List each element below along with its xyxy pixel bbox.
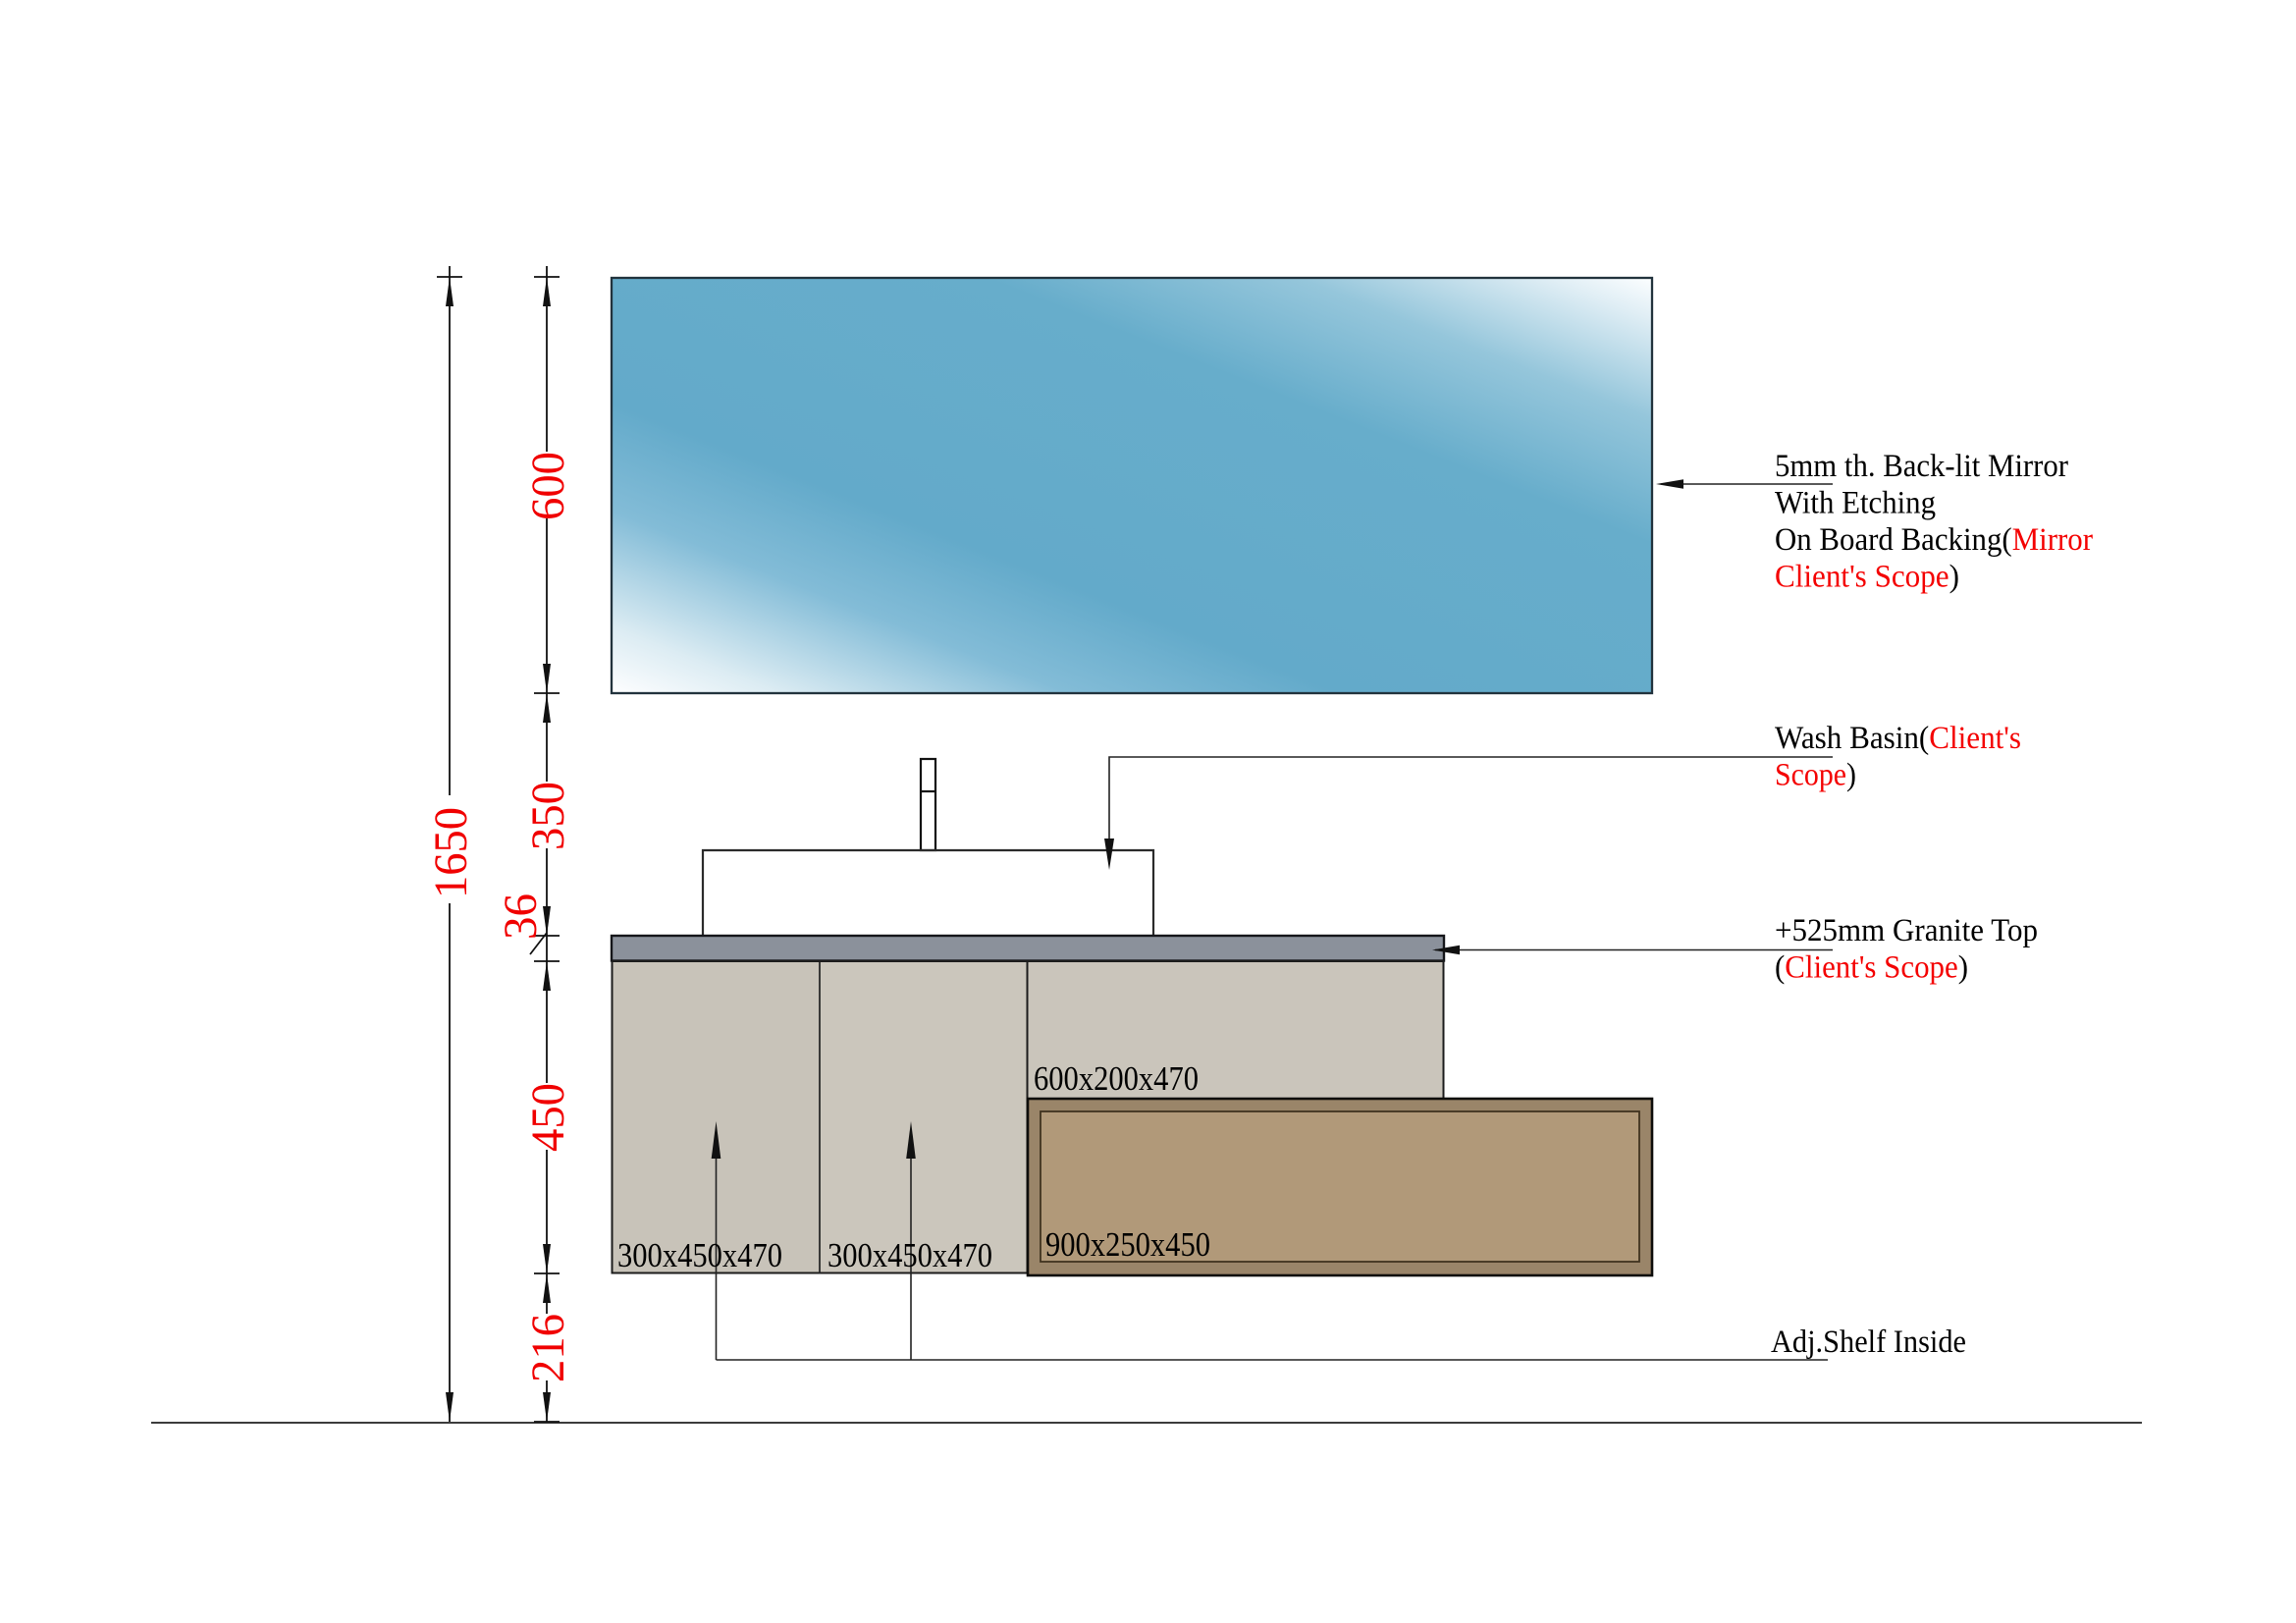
svg-text:5mm th. Back-lit Mirror: 5mm th. Back-lit Mirror xyxy=(1775,449,2068,484)
svg-text:1650: 1650 xyxy=(425,807,477,898)
svg-text:On Board Backing(Mirror: On Board Backing(Mirror xyxy=(1775,522,2093,558)
svg-text:600x200x470: 600x200x470 xyxy=(1034,1059,1199,1098)
svg-text:450: 450 xyxy=(522,1083,574,1152)
svg-text:900x250x450: 900x250x450 xyxy=(1045,1225,1210,1264)
svg-text:Client's Scope): Client's Scope) xyxy=(1775,560,1959,595)
svg-text:Wash Basin(Client's: Wash Basin(Client's xyxy=(1775,721,2021,756)
svg-text:300x450x470: 300x450x470 xyxy=(617,1236,782,1274)
svg-text:600: 600 xyxy=(522,452,574,520)
svg-text:216: 216 xyxy=(522,1314,574,1382)
svg-text:(Client's Scope): (Client's Scope) xyxy=(1775,950,1968,986)
svg-text:Adj.Shelf Inside: Adj.Shelf Inside xyxy=(1771,1325,1966,1360)
svg-text:With Etching: With Etching xyxy=(1775,486,1936,521)
svg-text:36: 36 xyxy=(495,893,547,940)
svg-text:350: 350 xyxy=(522,782,574,850)
svg-text:+525mm Granite Top: +525mm Granite Top xyxy=(1775,913,2038,948)
svg-text:300x450x470: 300x450x470 xyxy=(828,1236,992,1274)
svg-text:Scope): Scope) xyxy=(1775,758,1856,793)
